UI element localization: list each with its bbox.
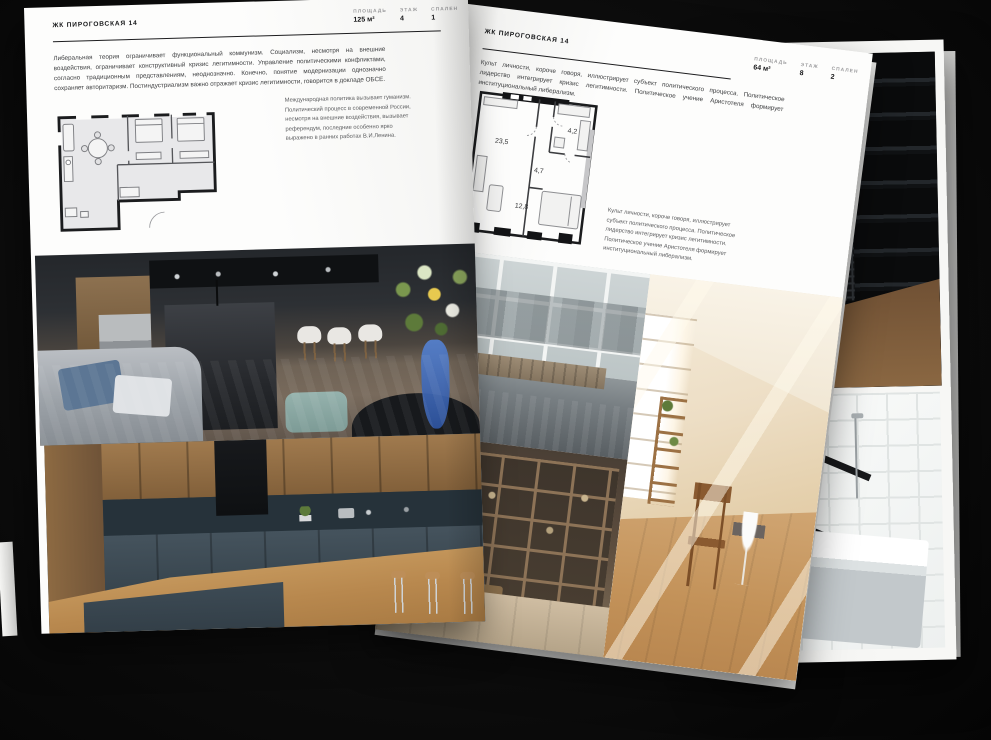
stat-floor: ЭТАЖ 8 — [799, 63, 819, 79]
left-page-title: ЖК ПИРОГОВСКАЯ 14 — [52, 20, 137, 29]
magazine-spread-mockup: ЖК ПИРОГОВСКАЯ 14 ПЛОЩАДЬ 64 м² ЭТАЖ 8 С… — [0, 0, 991, 740]
blue-pillow — [58, 360, 126, 411]
room-area-label: 4,2 — [567, 128, 578, 136]
floor-plan-right: 23,5 4,7 4,2 12,8 — [460, 86, 603, 250]
header-rule — [53, 30, 441, 42]
stat-value: 2 — [830, 74, 858, 84]
stat-label: ЭТАЖ — [400, 8, 418, 14]
stat-value: 4 — [400, 15, 418, 23]
flower-bouquet — [387, 255, 473, 348]
left-page-body: Либеральная теория ограничивает функцион… — [53, 45, 386, 94]
bar-stool — [390, 570, 406, 612]
left-page-caption: Международная политика вызывает гуманизм… — [285, 93, 414, 145]
stat-value: 125 м² — [353, 16, 387, 24]
kitchen-wall-shelf — [149, 254, 379, 289]
white-pillow — [112, 374, 172, 416]
teal-ottoman — [285, 392, 348, 434]
bar-stool — [425, 571, 441, 613]
left-page-stats: ПЛОЩАДЬ 125 м² ЭТАЖ 4 СПАЛЕН 1 — [340, 7, 458, 24]
bar-stool — [460, 572, 476, 614]
counter-plant — [299, 506, 311, 521]
left-page: ЖК ПИРОГОВСКАЯ 14 ПЛОЩАДЬ 125 м² ЭТАЖ 4 … — [24, 0, 485, 634]
black-cooker-hood — [214, 439, 268, 516]
stat-value: 8 — [799, 70, 818, 79]
stat-area: ПЛОЩАДЬ 64 м² — [753, 57, 788, 75]
stat-value: 64 м² — [753, 64, 787, 75]
floor-plan-left — [55, 107, 220, 237]
stat-area: ПЛОЩАДЬ 125 м² — [353, 9, 387, 24]
room-area-label: 4,7 — [534, 167, 545, 175]
white-chair — [327, 327, 352, 362]
stat-label: ЭТАЖ — [800, 63, 819, 70]
stat-bedrooms: СПАЛЕН 2 — [830, 67, 859, 84]
stat-value: 1 — [431, 14, 458, 22]
stat-label: СПАЛЕН — [431, 7, 458, 13]
photo-dark-kitchen — [35, 244, 480, 446]
white-chair — [297, 326, 322, 361]
kitchen-island — [164, 302, 277, 430]
black-table — [351, 392, 480, 437]
gray-couch — [38, 346, 203, 446]
counter-pot — [338, 508, 354, 518]
photo-green-kitchen — [44, 433, 485, 633]
left-page-curl-edge — [0, 542, 17, 637]
right-page-title: ЖК ПИРОГОВСКАЯ 14 — [484, 28, 569, 45]
stat-bedrooms: СПАЛЕН 1 — [431, 7, 458, 22]
blue-vase — [420, 339, 451, 429]
right-page-stats: ПЛОЩАДЬ 64 м² ЭТАЖ 8 СПАЛЕН 2 — [744, 56, 859, 84]
stat-label: ПЛОЩАДЬ — [353, 9, 387, 15]
bathroom-shower-head — [851, 414, 863, 419]
right-page-caption: Культ личности, короче говоря, иллюстрир… — [602, 207, 743, 271]
white-chair — [358, 324, 383, 359]
stat-floor: ЭТАЖ 4 — [400, 8, 419, 23]
